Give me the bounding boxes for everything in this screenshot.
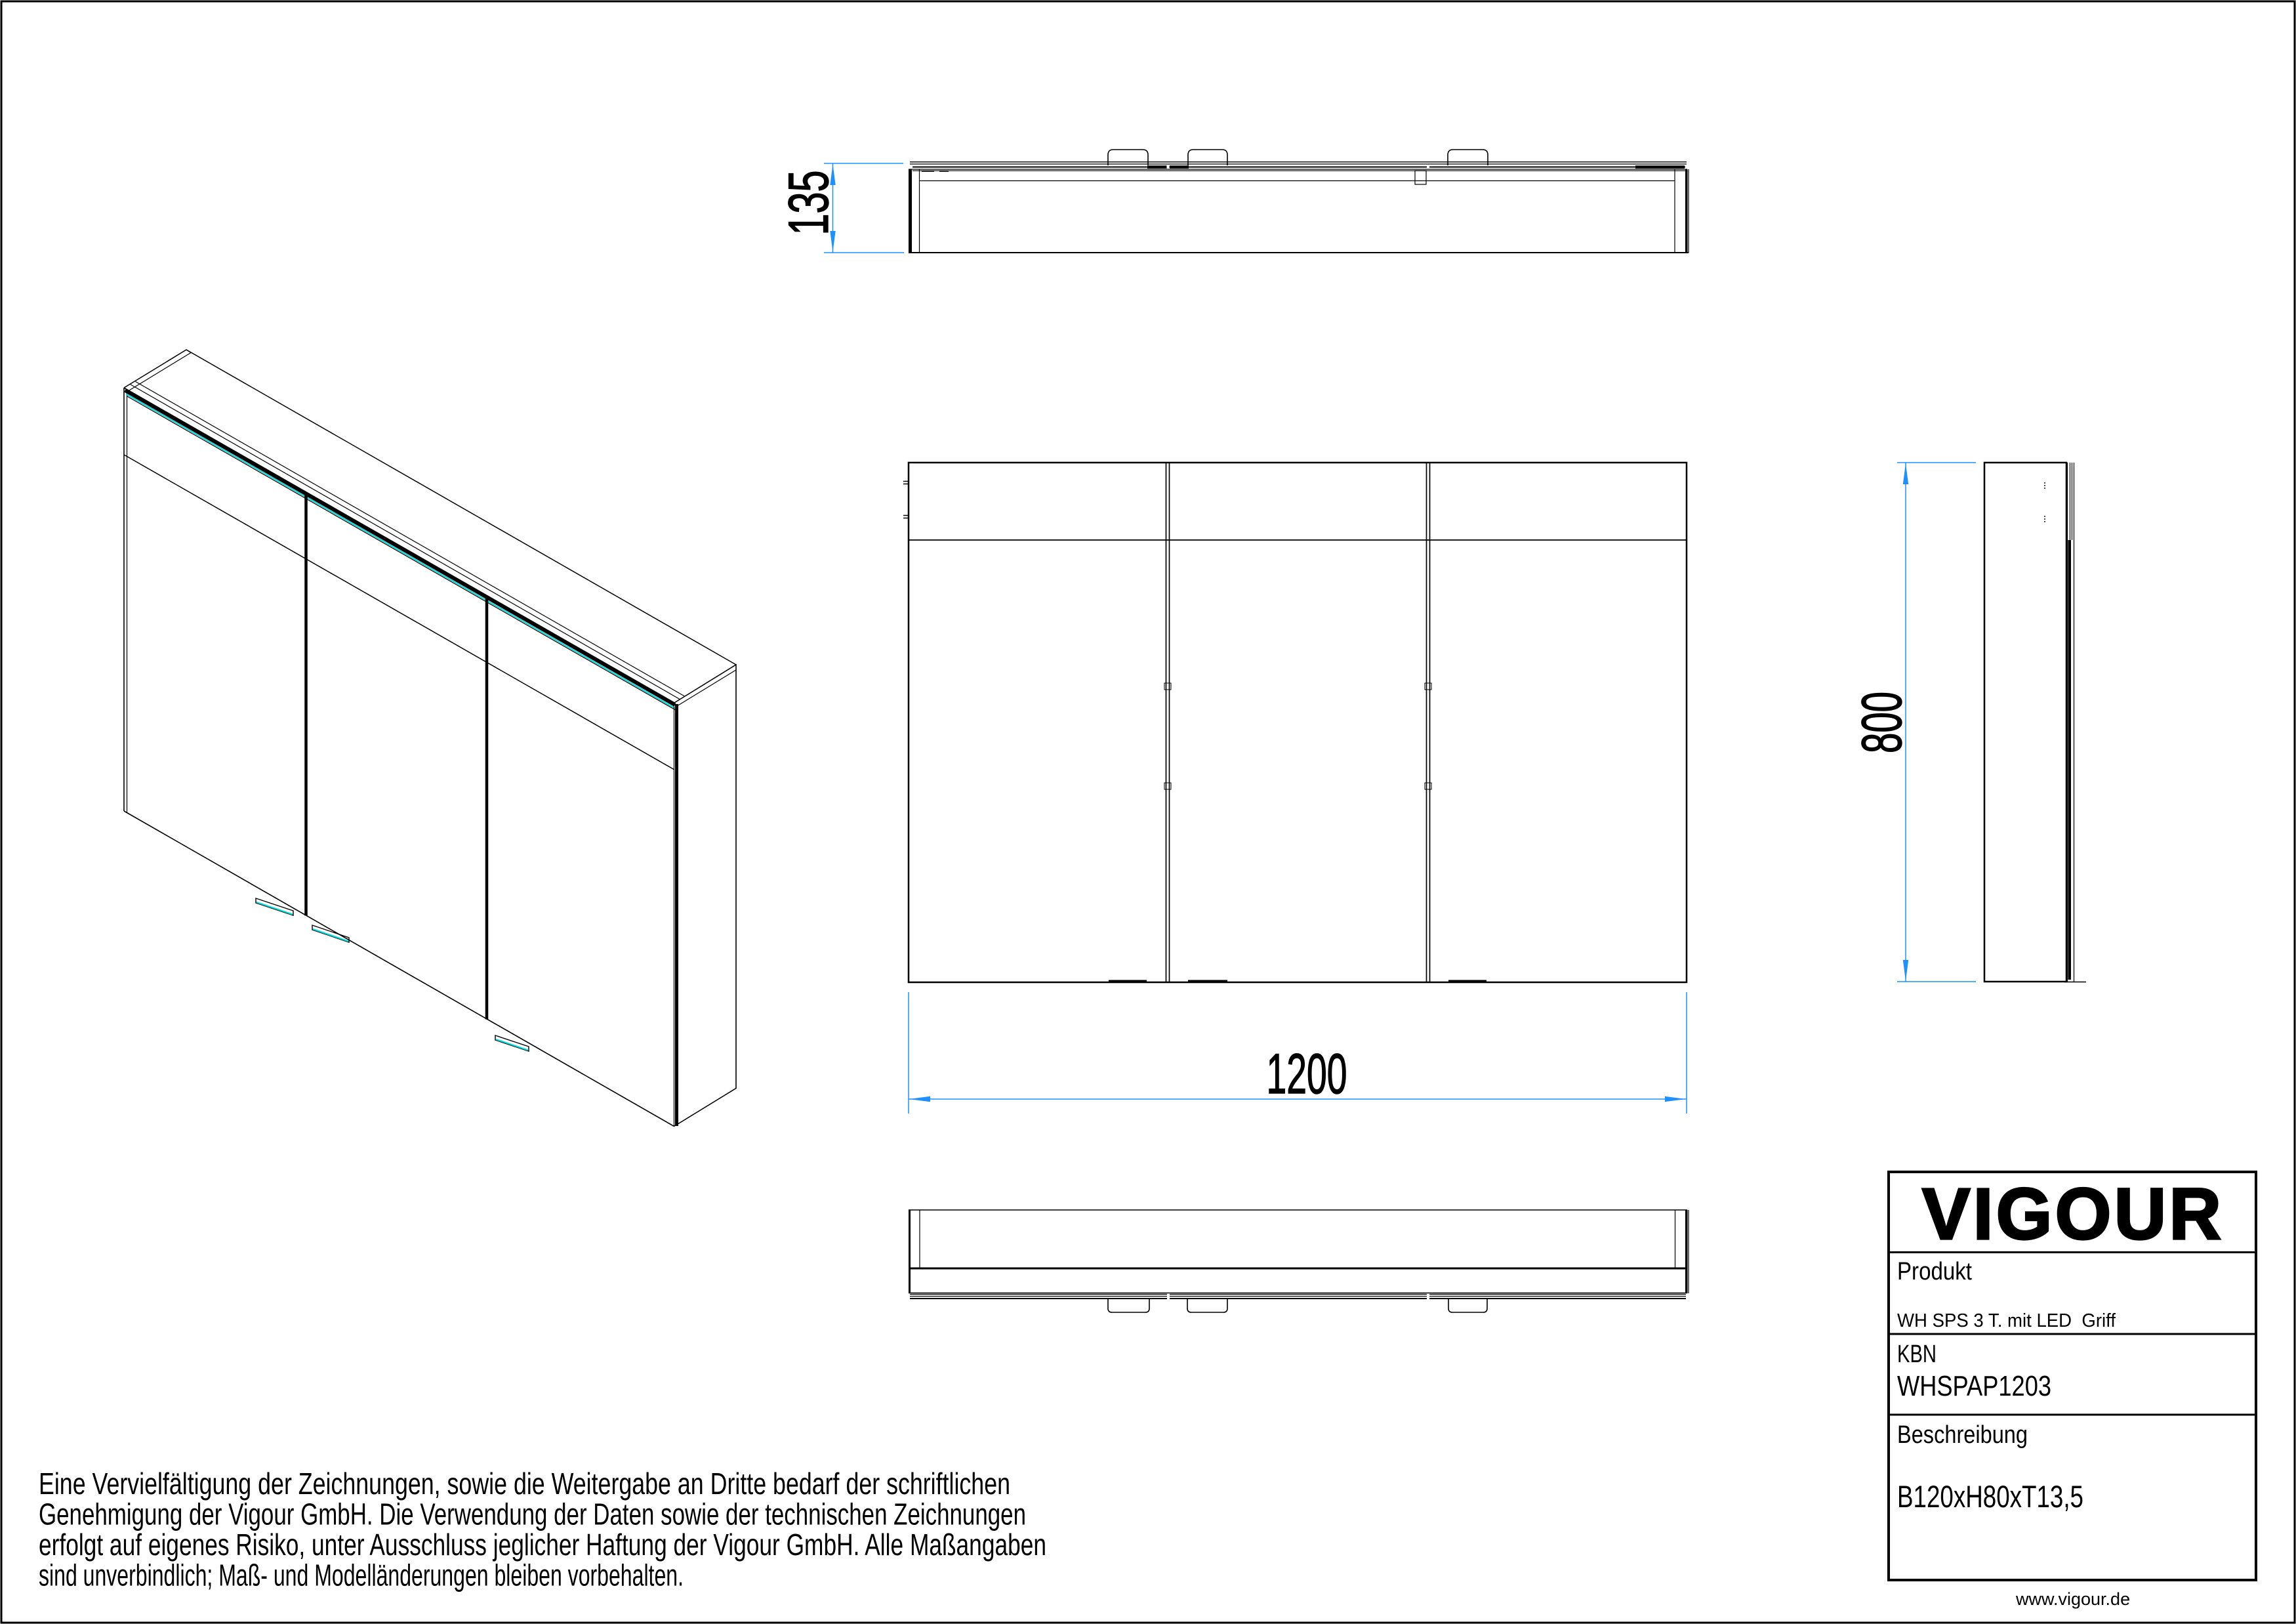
svg-text:WH SPS 3 T. mit LED Griff: WH SPS 3 T. mit LED Griff xyxy=(1897,1310,2116,1331)
svg-text:KBN: KBN xyxy=(1897,1341,1937,1368)
svg-text:Eine Vervielfältigung der Zeic: Eine Vervielfältigung der Zeichnungen, s… xyxy=(39,1467,1010,1501)
svg-text:1200: 1200 xyxy=(1267,1043,1347,1106)
svg-text:Produkt: Produkt xyxy=(1897,1258,1972,1285)
svg-text:VIGOUR: VIGOUR xyxy=(1922,1174,2221,1255)
svg-text:B120xH80xT13,5: B120xH80xT13,5 xyxy=(1897,1479,2083,1514)
svg-text:www.vigour.de: www.vigour.de xyxy=(2015,1589,2130,1609)
svg-text:WHSPAP1203: WHSPAP1203 xyxy=(1897,1370,2051,1402)
svg-text:Genehmigung der Vigour GmbH. D: Genehmigung der Vigour GmbH. Die Verwend… xyxy=(39,1497,1026,1531)
svg-text:800: 800 xyxy=(1851,692,1914,753)
svg-text:Beschreibung: Beschreibung xyxy=(1897,1421,2028,1449)
svg-text:135: 135 xyxy=(777,171,840,236)
svg-text:erfolgt auf eigenes Risiko, un: erfolgt auf eigenes Risiko, unter Aussch… xyxy=(39,1528,1046,1562)
svg-text:sind unverbindlich; Maß- und M: sind unverbindlich; Maß- und Modelländer… xyxy=(39,1558,684,1593)
